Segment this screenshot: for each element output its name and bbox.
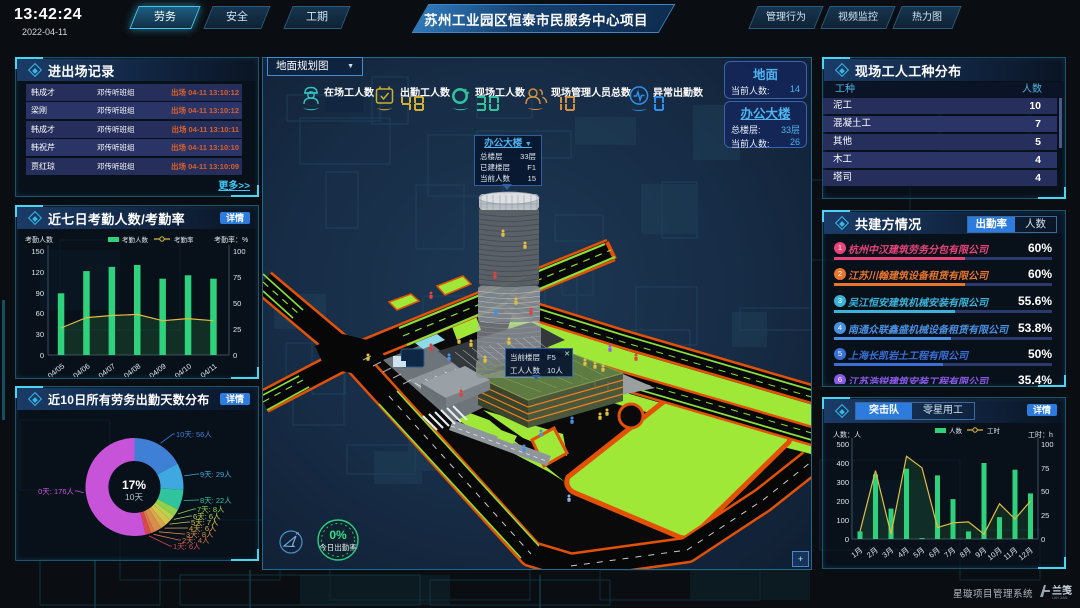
- svg-text:工时: 工时: [987, 426, 1001, 435]
- svg-text:考勤率: 考勤率: [174, 235, 194, 244]
- svg-text:人数：人: 人数：人: [833, 430, 861, 439]
- svg-text:25: 25: [1041, 511, 1049, 520]
- svg-text:考勤率：%: 考勤率：%: [214, 235, 248, 244]
- svg-text:100: 100: [1041, 440, 1054, 449]
- svg-text:5月: 5月: [911, 545, 926, 559]
- svg-text:人数: 人数: [949, 426, 963, 435]
- svg-text:工时：h: 工时：h: [1028, 430, 1053, 439]
- svg-text:100: 100: [836, 516, 849, 525]
- svg-text:04/09: 04/09: [147, 361, 167, 377]
- svg-text:500: 500: [836, 440, 849, 449]
- svg-text:9天: 29人: 9天: 29人: [200, 470, 232, 479]
- svg-text:04/05: 04/05: [46, 361, 66, 377]
- svg-text:04/10: 04/10: [173, 361, 193, 377]
- svg-text:6月: 6月: [927, 545, 942, 559]
- svg-text:0天: 176人: 0天: 176人: [38, 487, 74, 496]
- svg-text:17%: 17%: [122, 478, 146, 492]
- svg-text:200: 200: [836, 497, 849, 506]
- svg-text:4月: 4月: [896, 545, 911, 559]
- svg-text:LAN JIAN: LAN JIAN: [1052, 596, 1068, 600]
- svg-text:04/08: 04/08: [122, 361, 142, 377]
- svg-text:3月: 3月: [880, 545, 895, 559]
- svg-text:2月: 2月: [865, 545, 880, 559]
- svg-text:100: 100: [233, 247, 246, 256]
- svg-text:考勤人数: 考勤人数: [122, 235, 149, 244]
- svg-text:04/11: 04/11: [199, 361, 219, 377]
- svg-text:0: 0: [40, 351, 44, 360]
- svg-text:150: 150: [31, 247, 44, 256]
- svg-text:考勤人数: 考勤人数: [25, 235, 53, 244]
- svg-text:30: 30: [36, 330, 44, 339]
- svg-text:10天: 56人: 10天: 56人: [176, 430, 212, 439]
- svg-text:120: 120: [31, 268, 44, 277]
- svg-text:04/06: 04/06: [71, 361, 91, 377]
- svg-text:0%: 0%: [329, 528, 347, 542]
- svg-text:60: 60: [36, 309, 44, 318]
- svg-text:50: 50: [233, 299, 241, 308]
- svg-text:300: 300: [836, 478, 849, 487]
- svg-text:0: 0: [1041, 535, 1045, 544]
- svg-text:50: 50: [1041, 487, 1049, 496]
- svg-text:1天: 6人: 1天: 6人: [173, 542, 201, 551]
- svg-text:04/07: 04/07: [97, 361, 117, 377]
- svg-text:8月: 8月: [958, 545, 973, 559]
- svg-text:0: 0: [845, 535, 849, 544]
- svg-text:90: 90: [36, 289, 44, 298]
- svg-text:0: 0: [233, 351, 237, 360]
- svg-text:10天: 10天: [125, 492, 143, 502]
- svg-text:75: 75: [233, 273, 241, 282]
- svg-text:12月: 12月: [1017, 545, 1035, 562]
- svg-text:8天: 22人: 8天: 22人: [200, 496, 232, 505]
- svg-text:9月: 9月: [973, 545, 988, 559]
- svg-text:400: 400: [836, 459, 849, 468]
- svg-text:11月: 11月: [1002, 545, 1020, 562]
- svg-text:75: 75: [1041, 464, 1049, 473]
- svg-text:1月: 1月: [849, 545, 864, 559]
- svg-text:7月: 7月: [942, 545, 957, 559]
- svg-text:10月: 10月: [986, 545, 1004, 562]
- svg-text:25: 25: [233, 325, 241, 334]
- svg-text:N: N: [296, 531, 299, 536]
- svg-text:今日出勤率: 今日出勤率: [319, 542, 357, 552]
